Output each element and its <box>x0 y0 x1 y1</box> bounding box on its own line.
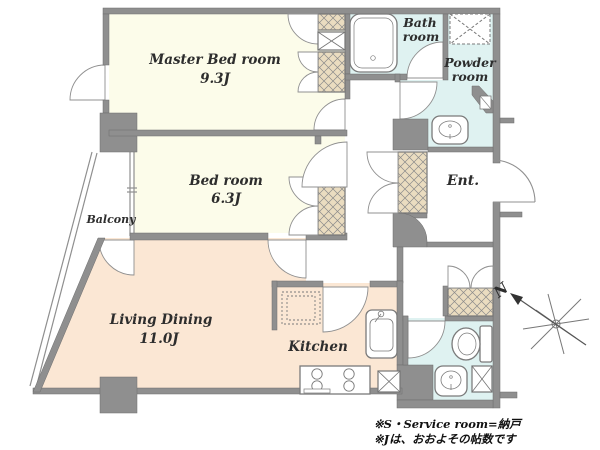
wall-stub <box>500 118 514 123</box>
living-dining-size: 11.0J <box>139 331 180 347</box>
wall <box>397 365 433 400</box>
bathroom-label-line1: Bath <box>402 15 437 30</box>
bedroom-size: 6.3J <box>211 191 242 207</box>
powder-room-label-line2: room <box>452 69 489 84</box>
washbasin-icon <box>432 116 468 144</box>
kitchen-sink-icon <box>366 310 397 358</box>
bedroom-label: Bed room <box>188 173 263 189</box>
entrance-door-arc <box>493 160 535 202</box>
wall <box>443 14 448 80</box>
stove-icon <box>300 366 370 394</box>
shaft-icon <box>378 371 400 392</box>
shaft-icon <box>318 32 345 50</box>
bathtub-icon <box>350 14 397 72</box>
kitchen-label: Kitchen <box>287 339 348 355</box>
wall <box>403 316 408 365</box>
master-bedroom-size: 9.3J <box>200 71 231 87</box>
wall <box>397 281 403 365</box>
master-bedroom-label: Master Bed room <box>148 52 280 68</box>
wall <box>393 119 428 150</box>
wall-stub <box>500 212 522 217</box>
master-bedroom-outer-door-arc <box>70 65 105 100</box>
balcony-label: Balcony <box>85 213 137 226</box>
wall <box>103 8 500 14</box>
wall <box>315 136 321 144</box>
wall <box>443 286 448 316</box>
wall <box>272 281 277 330</box>
wall <box>103 100 109 113</box>
entrance-door <box>493 160 535 202</box>
powder-room-label-line1: Powder <box>443 55 497 70</box>
pillar <box>100 377 137 413</box>
entrance-label: Ent. <box>446 173 479 189</box>
wall <box>493 202 500 408</box>
wall <box>395 74 400 82</box>
footnote-line-2: ※Jは、おおよその帖数です <box>374 432 517 446</box>
compass-north-icon: N <box>489 278 589 354</box>
floorplan-svg: Master Bed room 9.3J Bed room 6.3J Livin… <box>0 0 600 450</box>
wall <box>427 242 493 247</box>
wall-stub <box>500 392 517 398</box>
living-dining-label: Living Dining <box>109 312 213 328</box>
wall <box>445 316 493 321</box>
floorplan-page: Master Bed room 9.3J Bed room 6.3J Livin… <box>0 0 600 450</box>
washing-machine-icon <box>450 14 490 44</box>
wall <box>109 130 347 136</box>
bathroom-label-line2: room <box>403 29 440 44</box>
footnotes: ※S・Service room=納戸 ※Jは、おおよその帖数です <box>374 417 523 446</box>
wall <box>397 247 403 283</box>
wall <box>493 14 500 163</box>
wall <box>130 233 268 240</box>
wall <box>397 400 493 408</box>
shaft-icon <box>472 366 492 392</box>
wall <box>103 14 109 65</box>
toilet-basin-icon <box>435 366 467 396</box>
wall <box>428 147 493 152</box>
wall <box>345 14 350 74</box>
wall <box>272 281 323 287</box>
footnote-line-1: ※S・Service room=納戸 <box>374 417 523 431</box>
toilet-icon <box>452 326 492 362</box>
